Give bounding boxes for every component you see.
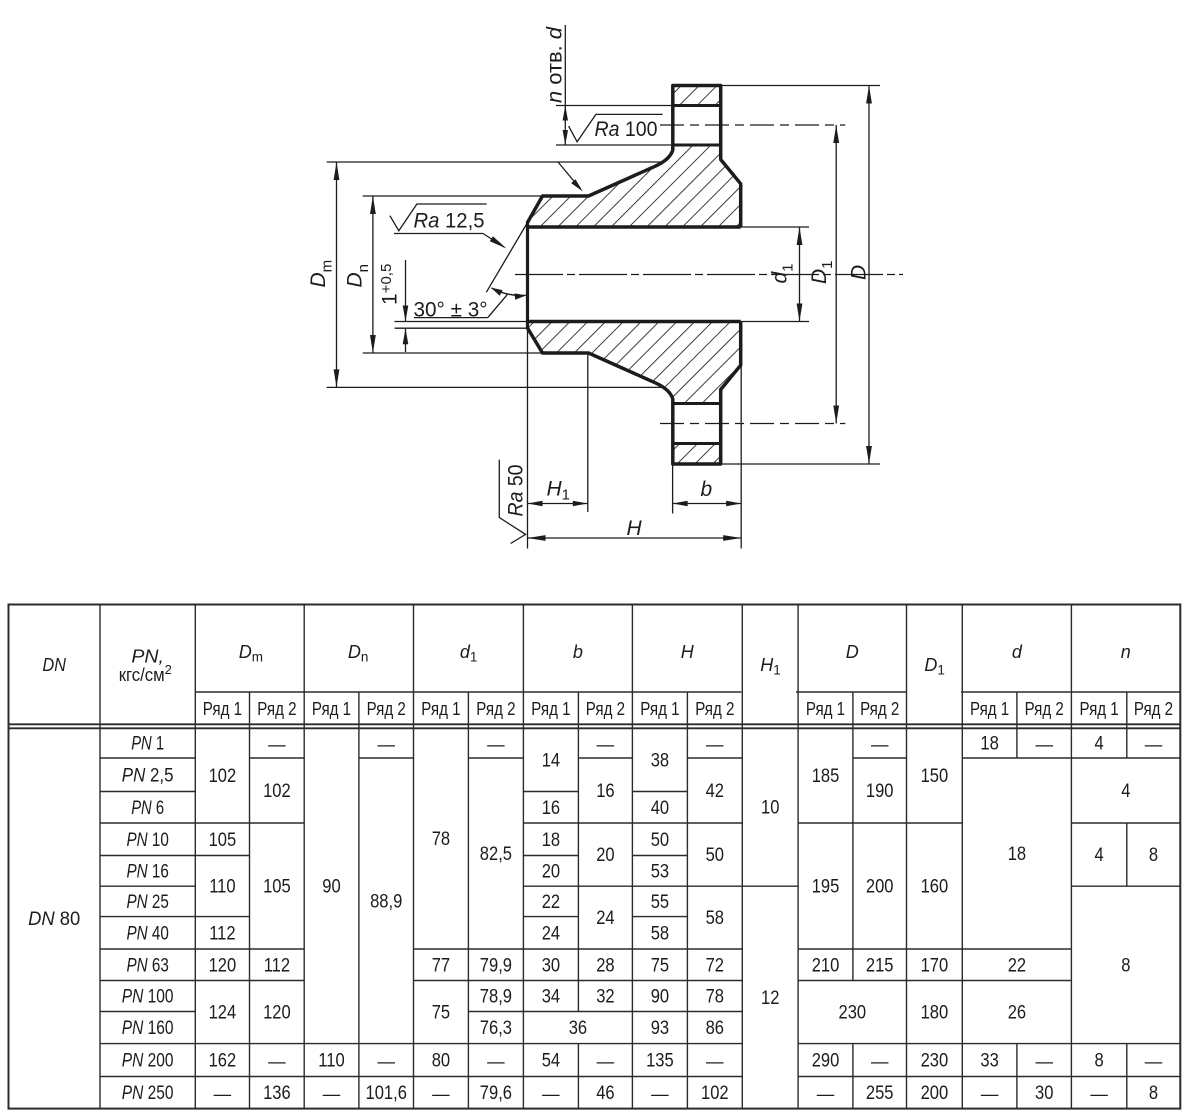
svg-text:82,5: 82,5: [480, 844, 512, 865]
svg-text:33: 33: [980, 1051, 998, 1072]
svg-text:215: 215: [866, 955, 894, 976]
svg-text:22: 22: [542, 892, 560, 913]
svg-text:D1: D1: [924, 655, 945, 678]
svg-text:Dm: Dm: [239, 642, 263, 665]
svg-text:Ряд 2: Ряд 2: [860, 699, 899, 719]
svg-text:38: 38: [651, 750, 669, 771]
svg-text:Ряд 1: Ряд 1: [531, 699, 570, 719]
svg-text:200: 200: [921, 1083, 949, 1104]
svg-text:PN 63: PN 63: [127, 955, 169, 976]
svg-text:102: 102: [263, 781, 291, 802]
svg-text:90: 90: [322, 876, 340, 897]
svg-text:D: D: [848, 265, 871, 280]
svg-text:1+0,5: 1+0,5: [378, 264, 402, 305]
svg-text:DN: DN: [43, 655, 67, 675]
svg-text:101,6: 101,6: [366, 1083, 407, 1104]
svg-text:Ra 50: Ra 50: [505, 465, 528, 517]
svg-text:4: 4: [1095, 845, 1105, 866]
svg-text:H: H: [627, 517, 643, 540]
svg-text:112: 112: [264, 955, 290, 976]
svg-text:—: —: [981, 1084, 999, 1105]
svg-text:8: 8: [1149, 1083, 1158, 1104]
svg-text:—: —: [871, 735, 889, 756]
svg-text:170: 170: [921, 955, 949, 976]
svg-text:PN 16: PN 16: [127, 862, 169, 883]
svg-text:55: 55: [651, 892, 669, 913]
svg-text:—: —: [487, 1052, 505, 1073]
svg-text:150: 150: [921, 766, 949, 787]
svg-text:78,9: 78,9: [480, 987, 512, 1008]
svg-text:—: —: [597, 1052, 615, 1073]
svg-text:50: 50: [706, 845, 724, 866]
svg-text:24: 24: [542, 923, 561, 944]
svg-text:160: 160: [921, 877, 949, 898]
svg-text:H1: H1: [547, 478, 571, 504]
svg-text:—: —: [706, 1052, 724, 1073]
svg-text:—: —: [1035, 1052, 1053, 1073]
svg-text:PN 25: PN 25: [127, 892, 169, 913]
svg-text:58: 58: [706, 908, 724, 929]
svg-text:Ряд 2: Ряд 2: [1134, 699, 1173, 719]
svg-text:18: 18: [1008, 844, 1026, 865]
svg-text:230: 230: [839, 1003, 867, 1024]
svg-text:PN 1: PN 1: [131, 734, 164, 755]
svg-text:Ряд 1: Ряд 1: [203, 699, 242, 719]
svg-text:—: —: [706, 735, 724, 756]
svg-text:Dn: Dn: [344, 264, 373, 288]
svg-text:105: 105: [263, 877, 291, 898]
svg-text:d1: d1: [769, 263, 797, 283]
svg-text:14: 14: [542, 750, 561, 771]
svg-text:16: 16: [542, 798, 560, 819]
svg-text:d: d: [1012, 642, 1023, 662]
svg-text:Ряд 2: Ряд 2: [476, 699, 515, 719]
svg-text:Ряд 1: Ряд 1: [970, 699, 1009, 719]
svg-text:n отв. d: n отв. d: [544, 26, 567, 103]
svg-text:18: 18: [980, 734, 998, 755]
svg-text:d1: d1: [460, 642, 478, 665]
svg-text:190: 190: [866, 781, 894, 802]
svg-text:79,9: 79,9: [480, 955, 512, 976]
svg-text:4: 4: [1095, 734, 1105, 755]
svg-text:10: 10: [761, 798, 779, 819]
svg-text:88,9: 88,9: [370, 891, 402, 912]
svg-text:—: —: [214, 1084, 232, 1105]
svg-text:230: 230: [921, 1051, 949, 1072]
svg-text:Ряд 1: Ряд 1: [640, 699, 679, 719]
svg-text:120: 120: [209, 955, 237, 976]
svg-text:Ra 12,5: Ra 12,5: [414, 210, 485, 233]
svg-text:2: 2: [165, 662, 172, 677]
svg-text:53: 53: [651, 862, 669, 883]
svg-text:Dm: Dm: [307, 260, 336, 288]
svg-text:b: b: [573, 642, 583, 662]
svg-text:DN 80: DN 80: [28, 909, 80, 930]
svg-text:—: —: [268, 735, 286, 756]
svg-text:H1: H1: [760, 655, 781, 678]
svg-text:H: H: [681, 642, 695, 662]
svg-text:n: n: [1121, 642, 1131, 662]
svg-text:34: 34: [542, 987, 561, 1008]
svg-text:Dn: Dn: [348, 642, 369, 665]
svg-text:D: D: [846, 642, 859, 662]
svg-text:Ряд 2: Ряд 2: [367, 699, 406, 719]
svg-text:—: —: [1145, 735, 1163, 756]
svg-text:28: 28: [596, 955, 614, 976]
svg-text:PN 2,5: PN 2,5: [122, 765, 174, 786]
svg-text:—: —: [1035, 735, 1053, 756]
svg-text:Ряд 1: Ряд 1: [806, 699, 845, 719]
svg-text:16: 16: [596, 781, 614, 802]
svg-text:26: 26: [1008, 1003, 1026, 1024]
svg-text:32: 32: [596, 987, 614, 1008]
svg-text:4: 4: [1121, 781, 1131, 802]
svg-text:—: —: [377, 735, 395, 756]
svg-text:79,6: 79,6: [480, 1083, 512, 1104]
svg-text:—: —: [432, 1084, 450, 1105]
svg-text:8: 8: [1121, 956, 1130, 977]
svg-text:30° ± 3°: 30° ± 3°: [414, 299, 488, 322]
svg-text:36: 36: [569, 1018, 587, 1039]
svg-text:Ряд 2: Ряд 2: [586, 699, 625, 719]
svg-text:—: —: [542, 1084, 560, 1105]
svg-text:b: b: [701, 478, 713, 501]
svg-text:86: 86: [706, 1018, 724, 1039]
svg-text:195: 195: [812, 877, 840, 898]
svg-text:кгс/см: кгс/см: [119, 665, 165, 685]
svg-text:22: 22: [1008, 955, 1026, 976]
svg-text:Ra 100: Ra 100: [595, 118, 658, 141]
svg-text:255: 255: [866, 1083, 894, 1104]
svg-text:210: 210: [812, 955, 840, 976]
svg-text:PN 250: PN 250: [122, 1083, 174, 1104]
svg-text:—: —: [1090, 1084, 1108, 1105]
svg-text:112: 112: [209, 923, 235, 944]
svg-text:D1: D1: [808, 260, 836, 284]
svg-text:77: 77: [432, 955, 450, 976]
svg-text:30: 30: [1035, 1083, 1053, 1104]
svg-text:76,3: 76,3: [480, 1018, 512, 1039]
svg-text:200: 200: [866, 877, 894, 898]
svg-text:—: —: [487, 735, 505, 756]
svg-text:Ряд 2: Ряд 2: [695, 699, 734, 719]
svg-text:105: 105: [209, 830, 237, 851]
svg-text:PN 100: PN 100: [122, 987, 174, 1008]
svg-text:72: 72: [706, 955, 724, 976]
svg-text:PN 40: PN 40: [127, 923, 169, 944]
svg-text:180: 180: [921, 1003, 949, 1024]
svg-text:58: 58: [651, 923, 669, 944]
svg-text:Ряд 1: Ряд 1: [421, 699, 460, 719]
svg-text:110: 110: [209, 877, 235, 898]
svg-text:PN 10: PN 10: [127, 830, 169, 851]
svg-text:18: 18: [542, 830, 560, 851]
svg-text:PN 200: PN 200: [122, 1051, 174, 1072]
svg-text:—: —: [597, 735, 615, 756]
svg-text:42: 42: [706, 781, 724, 802]
svg-text:20: 20: [542, 862, 560, 883]
svg-text:80: 80: [432, 1051, 450, 1072]
svg-text:24: 24: [596, 908, 615, 929]
svg-text:54: 54: [542, 1051, 561, 1072]
svg-text:30: 30: [542, 955, 560, 976]
svg-text:75: 75: [651, 955, 669, 976]
svg-text:40: 40: [651, 798, 669, 819]
svg-text:PN,: PN,: [131, 647, 164, 667]
svg-text:136: 136: [263, 1083, 291, 1104]
svg-text:20: 20: [596, 845, 614, 866]
svg-text:162: 162: [209, 1051, 237, 1072]
svg-text:Ряд 1: Ряд 1: [1080, 699, 1119, 719]
svg-text:8: 8: [1095, 1051, 1104, 1072]
svg-text:78: 78: [706, 987, 724, 1008]
svg-text:102: 102: [701, 1083, 729, 1104]
svg-text:185: 185: [812, 766, 840, 787]
svg-text:78: 78: [432, 829, 450, 850]
svg-text:—: —: [323, 1084, 341, 1105]
svg-text:46: 46: [596, 1083, 614, 1104]
svg-text:12: 12: [761, 988, 779, 1009]
svg-text:—: —: [268, 1052, 286, 1073]
svg-text:8: 8: [1149, 845, 1158, 866]
svg-text:120: 120: [263, 1003, 291, 1024]
svg-text:50: 50: [651, 830, 669, 851]
svg-text:102: 102: [209, 766, 237, 787]
svg-text:124: 124: [209, 1003, 237, 1024]
svg-text:135: 135: [646, 1051, 674, 1072]
svg-text:75: 75: [432, 1003, 450, 1024]
svg-text:—: —: [1145, 1052, 1163, 1073]
svg-text:Ряд 1: Ряд 1: [312, 699, 351, 719]
svg-text:Ряд 2: Ряд 2: [1025, 699, 1064, 719]
svg-text:93: 93: [651, 1018, 669, 1039]
svg-text:110: 110: [318, 1051, 344, 1072]
svg-text:PN 160: PN 160: [122, 1018, 174, 1039]
svg-text:90: 90: [651, 987, 669, 1008]
svg-text:—: —: [817, 1084, 835, 1105]
svg-text:—: —: [377, 1052, 395, 1073]
svg-text:—: —: [871, 1052, 889, 1073]
svg-text:—: —: [651, 1084, 669, 1105]
svg-text:290: 290: [812, 1051, 840, 1072]
svg-text:PN 6: PN 6: [131, 798, 164, 819]
svg-text:Ряд 2: Ряд 2: [257, 699, 296, 719]
